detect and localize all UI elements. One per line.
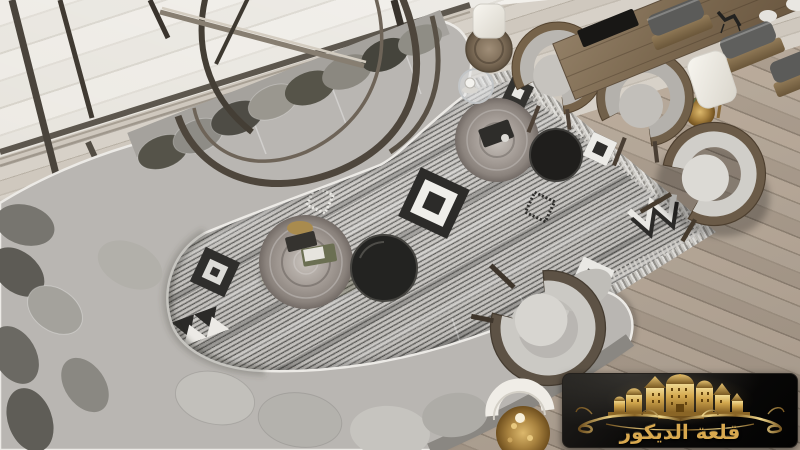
glass-side-table — [459, 69, 493, 103]
rug-motif-dotted — [520, 187, 560, 227]
black-round-side-table-small — [530, 129, 582, 181]
white-table-lamp — [473, 4, 505, 38]
tree-trunk-coffee-table — [259, 215, 353, 309]
tree-trunk-side-table — [455, 98, 539, 182]
brand-watermark: قلعة الديكور — [562, 373, 798, 448]
living-room-photo: قلعة الديكور — [0, 0, 800, 450]
brand-text: قلعة الديكور — [562, 420, 798, 446]
black-round-side-table — [351, 235, 417, 301]
